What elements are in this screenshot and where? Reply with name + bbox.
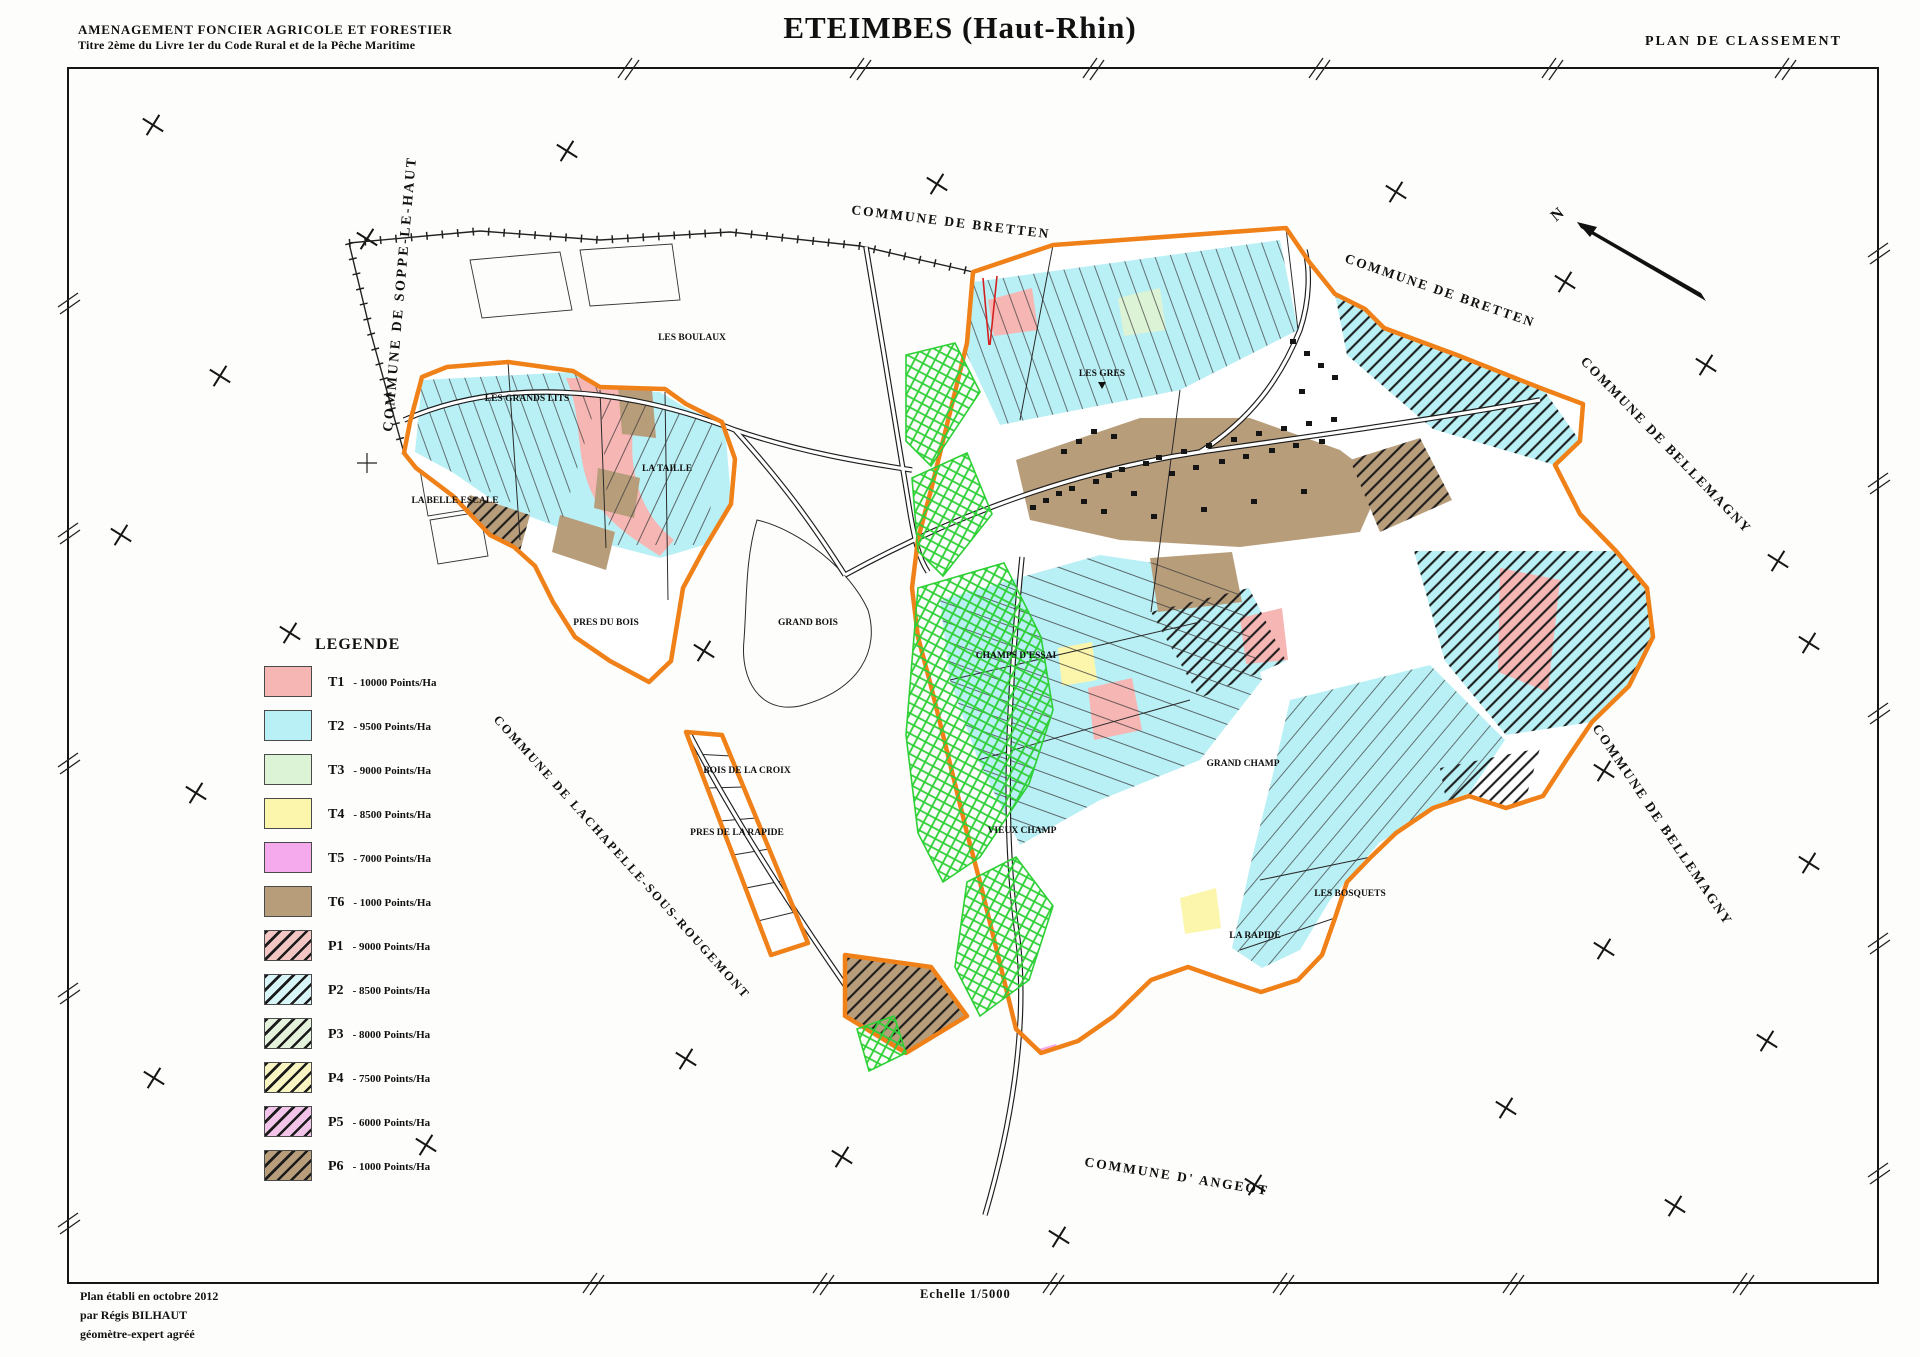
legend-item-code: T1 [328, 675, 344, 690]
legend-item-points: - 7000 Points/Ha [353, 853, 431, 865]
legend-item-points: - 8500 Points/Ha [353, 985, 431, 997]
legend-item: P1- 9000 Points/Ha [264, 931, 564, 960]
legend-swatch-p4 [264, 1062, 312, 1093]
commune-label: COMMUNE D' ANGEOT [1084, 1154, 1270, 1198]
legend-swatch-t5 [264, 842, 312, 873]
legend-item-points: - 9000 Points/Ha [353, 941, 431, 953]
legend-swatch-t2 [264, 710, 312, 741]
legend-swatch-p5 [264, 1106, 312, 1137]
legend-item-code: P4 [328, 1071, 344, 1086]
territory-west [404, 362, 735, 682]
survey-plus-mark [357, 453, 377, 473]
legend-swatch-t6 [264, 886, 312, 917]
lieu-dit-label: GRAND BOIS [778, 618, 838, 628]
legend: LEGENDE T1- 10000 Points/Ha T2- 9500 Poi… [264, 636, 564, 1195]
legend-item-points: - 9000 Points/Ha [353, 765, 431, 777]
legend-swatch-p1 [264, 930, 312, 961]
north-arrow-label: N [1548, 204, 1568, 225]
legend-item-code: T5 [328, 851, 344, 866]
commune-label: COMMUNE DE BELLEMAGNY [1578, 354, 1755, 537]
commune-label: COMMUNE DE SOPPE-LE-HAUT [381, 155, 420, 432]
legend-item: P6- 1000 Points/Ha [264, 1151, 564, 1180]
legend-item-points: - 9500 Points/Ha [353, 721, 431, 733]
legend-item: P4- 7500 Points/Ha [264, 1063, 564, 1092]
footer-credential-line: géomètre-expert agréé [80, 1325, 218, 1344]
lieu-dit-label: PRES DE LA RAPIDE [690, 828, 784, 838]
legend-item-code: T4 [328, 807, 344, 822]
lieu-dit-label: LES BOULAUX [658, 333, 726, 343]
legend-item-code: T2 [328, 719, 344, 734]
legend-item-points: - 1000 Points/Ha [353, 897, 431, 909]
legend-item-code: P1 [328, 939, 344, 954]
lieu-dit-label: BOIS DE LA CROIX [703, 766, 791, 776]
forest-outline [743, 520, 871, 707]
legend-item-code: P3 [328, 1027, 344, 1042]
legend-item: T1- 10000 Points/Ha [264, 667, 564, 696]
legend-item-points: - 7500 Points/Ha [353, 1073, 431, 1085]
legend-item-points: - 8000 Points/Ha [353, 1029, 431, 1041]
legend-item-code: P5 [328, 1115, 344, 1130]
lieu-dit-label: LES BOSQUETS [1314, 889, 1386, 899]
legend-item-points: - 8500 Points/Ha [353, 809, 431, 821]
lieu-dit-label: CHAMPS D'ESSAI [976, 651, 1057, 661]
legend-item-points: - 1000 Points/Ha [353, 1161, 431, 1173]
legend-item-code: P6 [328, 1159, 344, 1174]
footer-author-line: par Régis BILHAUT [80, 1306, 218, 1325]
lieu-dit-label: LES GRES [1079, 369, 1125, 379]
lieu-dit-label: VIEUX CHAMP [988, 826, 1057, 836]
legend-item-code: P2 [328, 983, 344, 998]
legend-item-code: T3 [328, 763, 344, 778]
legend-item: P5- 6000 Points/Ha [264, 1107, 564, 1136]
commune-label: COMMUNE DE BELLEMAGNY [1590, 721, 1736, 928]
legend-swatch-p3 [264, 1018, 312, 1049]
commune-label: COMMUNE DE BRETTEN [851, 202, 1052, 241]
lieu-dit-label: LA BELLE ESCALE [411, 496, 498, 506]
legend-title: LEGENDE [315, 636, 564, 654]
legend-item-code: T6 [328, 895, 344, 910]
legend-swatch-p2 [264, 974, 312, 1005]
lieu-dit-label: PRES DU BOIS [573, 618, 638, 628]
legend-item: T6- 1000 Points/Ha [264, 887, 564, 916]
footer-credits: Plan établi en octobre 2012 par Régis BI… [80, 1287, 218, 1345]
legend-item: T3- 9000 Points/Ha [264, 755, 564, 784]
scale-label: Echelle 1/5000 [920, 1287, 1011, 1302]
legend-swatch-p6 [264, 1150, 312, 1181]
legend-item: T4- 8500 Points/Ha [264, 799, 564, 828]
footer-date-line: Plan établi en octobre 2012 [80, 1287, 218, 1306]
legend-item: T2- 9500 Points/Ha [264, 711, 564, 740]
plan-page: AMENAGEMENT FONCIER AGRICOLE ET FORESTIE… [0, 0, 1920, 1357]
legend-swatch-t1 [264, 666, 312, 697]
lieu-dit-label: LES GRANDS LITS [485, 394, 569, 404]
lieu-dit-label: GRAND CHAMP [1206, 759, 1279, 769]
legend-item: T5- 7000 Points/Ha [264, 843, 564, 872]
legend-swatch-t3 [264, 754, 312, 785]
legend-swatch-t4 [264, 798, 312, 829]
lieu-dit-label: LA TAILLE [642, 464, 692, 474]
legend-item: P2- 8500 Points/Ha [264, 975, 564, 1004]
lieu-dit-label: LA RAPIDE [1229, 931, 1280, 941]
legend-item-points: - 6000 Points/Ha [353, 1117, 431, 1129]
legend-item-points: - 10000 Points/Ha [353, 677, 436, 689]
legend-item: P3- 8000 Points/Ha [264, 1019, 564, 1048]
